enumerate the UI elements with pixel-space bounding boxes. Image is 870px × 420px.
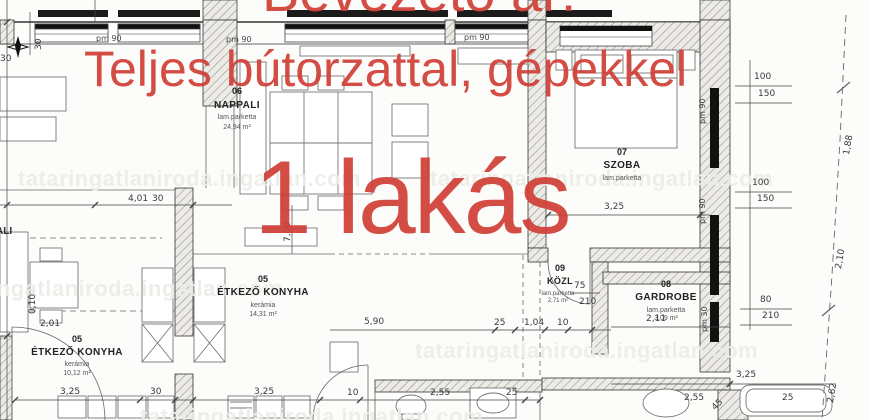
dimension: 25 [782,393,793,403]
dimension: 30 [152,194,163,204]
sink [643,389,689,417]
room-kozl-name: KÖZL [547,276,573,286]
dimension: 2,55 [684,393,704,403]
dimension: 5,90 [364,317,384,327]
room-etkezo-left-number: 05 [72,334,82,344]
dimension: 10 [557,318,568,328]
room-szoba-name: SZOBA [604,160,641,171]
dimension: 2,55 [430,388,450,398]
room-gardrobe-number: 08 [661,279,671,289]
dimension: 2,01 [40,319,60,329]
site-boundary [822,15,850,420]
room-gardrobe-floor: lam.parketta [647,307,686,314]
room-kozl-number: 09 [555,263,565,273]
dimension: pm 90 [698,198,707,224]
dimension: 25 [506,388,517,398]
room-etkezo-left-area: 10,12 m² [63,370,91,377]
room-szoba-floor: lam.parketta [603,175,642,182]
dimension: 25 [494,318,505,328]
room-kozl-area: 2,71 m² [548,298,568,304]
room-nappali-name: NAPPALI [214,100,260,111]
dimension: 4,01 [128,194,148,204]
dimension: 3,25 [60,387,80,397]
dimension: 150 [758,89,775,99]
dimension: 150 [757,194,774,204]
room-etkezo-center-floor: kerámia [251,302,276,309]
dimension: pm 30 [700,306,709,332]
dimension: 3,25 [604,202,624,212]
overlay-furnished-text: Teljes bútorzattal, gépekkel [84,44,687,94]
dimension: 75 [574,281,585,291]
room-gardrobe-name: GARDROBE [635,292,697,303]
dimension: 210 [579,297,596,307]
dimension: 3,25 [736,370,756,380]
room-neighbor-partial-name: ALI [0,226,12,237]
dimension: 1,04 [524,318,544,328]
dimension: pm 90 [698,98,707,124]
room-kozl-floor: lam.parketta [541,291,574,297]
dimension: 100 [754,72,771,82]
room-nappali-area: 24,94 m² [223,124,251,131]
room-etkezo-center-number: 05 [258,274,268,284]
dimension: 30 [34,39,44,50]
room-etkezo-center-area: 14,31 m² [249,311,277,318]
dimension: 10 [347,388,358,398]
watermark: tataringatlaniroda.ingatlan.com [415,338,758,364]
dimension: 210 [762,311,779,321]
dimension: 80 [760,295,771,305]
right-wall-openings [710,88,719,342]
dimension: 0,10 [28,294,38,314]
dimension: 3,25 [254,387,274,397]
dimension: 2,11 [646,314,666,324]
dimension: 100 [752,178,769,188]
room-szoba-number: 07 [617,147,627,157]
dimension: 30 [0,54,11,64]
armchair [392,104,428,136]
room-etkezo-center-name: ÉTKEZŐ KONYHA [217,287,309,298]
room-etkezo-left-floor: kerámia [65,361,90,368]
overlay-apartment-text: 1 lakás [254,146,570,250]
watermark: tataringatlaniroda.ingatlan.com [140,404,483,420]
room-nappali-floor: lam.parketta [218,114,257,121]
overlay-intro-price-text: Bevezető ár! [262,0,576,20]
floorplan-screenshot: tataringatlaniroda.ingatlan.com tataring… [0,0,870,420]
dimension: 30 [150,387,161,397]
room-etkezo-left-name: ÉTKEZŐ KONYHA [31,347,123,358]
